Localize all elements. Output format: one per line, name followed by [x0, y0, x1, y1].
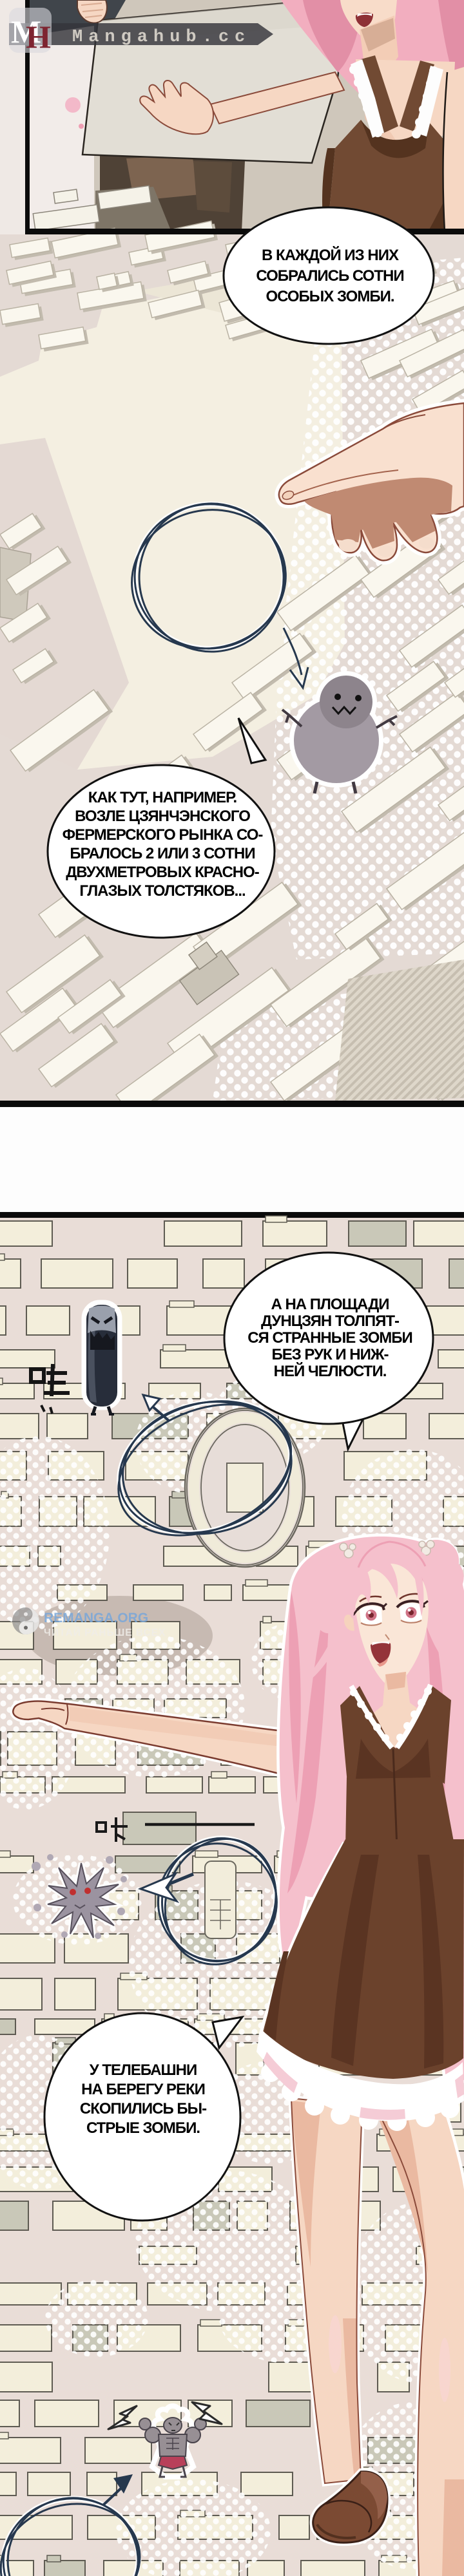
svg-text:БРАЛОСЬ 2 ИЛИ 3 СОТНИ: БРАЛОСЬ 2 ИЛИ 3 СОТНИ [70, 845, 255, 862]
svg-text:ДУНЦЗЯН ТОЛПЯТ-: ДУНЦЗЯН ТОЛПЯТ- [261, 1312, 400, 1330]
svg-text:НА БЕРЕГУ РЕКИ: НА БЕРЕГУ РЕКИ [81, 2081, 205, 2098]
svg-text:СЯ СТРАННЫЕ ЗОМБИ: СЯ СТРАННЫЕ ЗОМБИ [247, 1329, 412, 1347]
svg-text:REMANGA.ORG: REMANGA.ORG [44, 1611, 148, 1625]
svg-text:БЕЗ РУК И НИЖ-: БЕЗ РУК И НИЖ- [271, 1346, 389, 1363]
svg-text:НЕЙ ЧЕЛЮСТИ.: НЕЙ ЧЕЛЮСТИ. [274, 1362, 387, 1380]
svg-text:СТРЫЕ ЗОМБИ.: СТРЫЕ ЗОМБИ. [86, 2119, 200, 2137]
svg-text:H: H [26, 19, 51, 55]
svg-text:ФЕРМЕРСКОГО РЫНКА СО-: ФЕРМЕРСКОГО РЫНКА СО- [63, 826, 264, 844]
svg-text:ОСОБЫХ ЗОМБИ.: ОСОБЫХ ЗОМБИ. [266, 288, 394, 305]
svg-text:СКОПИЛИСЬ БЫ-: СКОПИЛИСЬ БЫ- [80, 2100, 207, 2117]
svg-text:ЧИТАЙ РАНЬШЕ ВСЕХ: ЧИТАЙ РАНЬШЕ ВСЕХ [44, 1627, 166, 1638]
svg-text:У ТЕЛЕБАШНИ: У ТЕЛЕБАШНИ [90, 2061, 197, 2079]
svg-text:А НА ПЛОЩАДИ: А НА ПЛОЩАДИ [271, 1296, 389, 1313]
svg-text:СОБРАЛИСЬ СОТНИ: СОБРАЛИСЬ СОТНИ [256, 267, 403, 285]
svg-text:ГЛАЗЫХ ТОЛСТЯКОВ...: ГЛАЗЫХ ТОЛСТЯКОВ... [79, 882, 246, 900]
svg-text:Mangahub.cc: Mangahub.cc [72, 28, 251, 47]
svg-text:ВОЗЛЕ ЦЗЯНЧЭНСКОГО: ВОЗЛЕ ЦЗЯНЧЭНСКОГО [75, 808, 250, 825]
svg-text:ДВУХМЕТРОВЫХ КРАСНО-: ДВУХМЕТРОВЫХ КРАСНО- [66, 864, 260, 881]
svg-text:В КАЖДОЙ ИЗ НИХ: В КАЖДОЙ ИЗ НИХ [262, 246, 399, 264]
svg-text:КАК ТУТ, НАПРИМЕР.: КАК ТУТ, НАПРИМЕР. [88, 789, 237, 806]
